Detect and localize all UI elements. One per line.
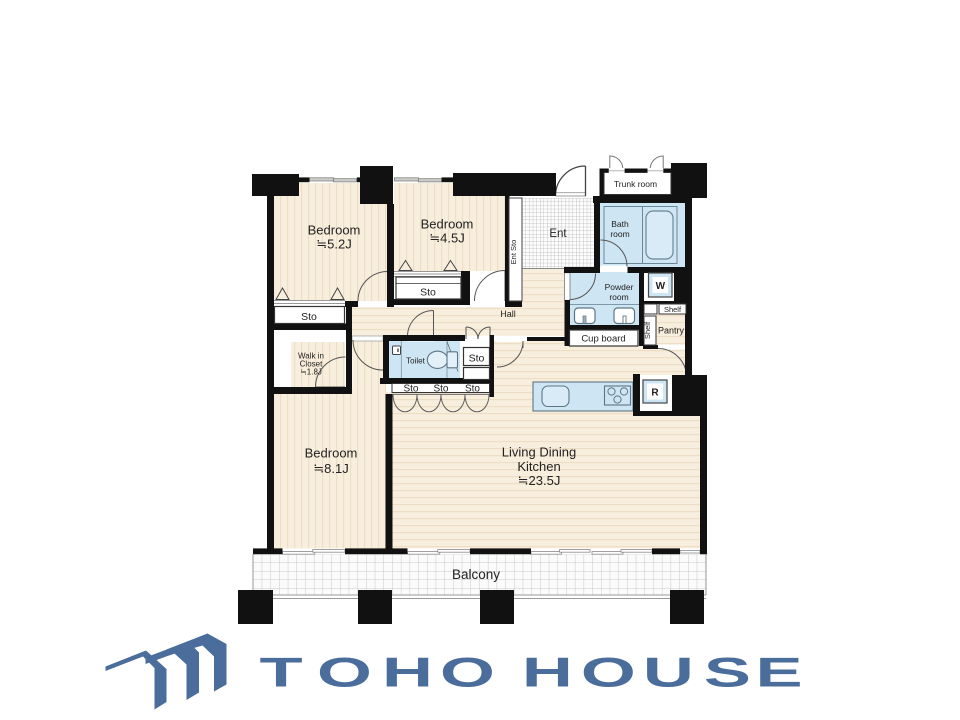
- svg-text:≒5.2J: ≒5.2J: [316, 237, 351, 252]
- svg-text:W: W: [656, 281, 666, 292]
- svg-text:Hall: Hall: [500, 309, 516, 319]
- svg-text:room: room: [610, 229, 629, 239]
- svg-text:≒8.1J: ≒8.1J: [313, 461, 348, 476]
- svg-text:Bath: Bath: [611, 219, 629, 229]
- svg-text:Sto: Sto: [403, 383, 418, 394]
- svg-text:Sto: Sto: [301, 311, 317, 323]
- svg-text:R: R: [651, 388, 659, 399]
- svg-text:≒4.5J: ≒4.5J: [429, 231, 464, 246]
- svg-text:Sto: Sto: [469, 353, 485, 365]
- svg-text:Trunk room: Trunk room: [614, 179, 657, 189]
- svg-text:room: room: [609, 292, 628, 302]
- svg-text:Shelf: Shelf: [664, 305, 682, 314]
- svg-text:≒23.5J: ≒23.5J: [518, 473, 561, 488]
- svg-text:Pantry: Pantry: [658, 326, 685, 336]
- svg-text:Ent: Ent: [549, 228, 567, 240]
- svg-text:Bedroom: Bedroom: [308, 223, 361, 238]
- svg-text:Powder: Powder: [605, 282, 634, 292]
- svg-text:TOHOHOUSE: TOHOHOUSE: [260, 649, 803, 696]
- svg-text:Toilet: Toilet: [406, 357, 425, 366]
- svg-text:Bedroom: Bedroom: [305, 446, 358, 461]
- svg-text:Sto: Sto: [433, 383, 448, 394]
- svg-text:Balcony: Balcony: [452, 567, 500, 582]
- svg-text:Living Dining: Living Dining: [502, 445, 576, 460]
- svg-text:Kitchen: Kitchen: [517, 459, 560, 474]
- svg-text:Bedroom: Bedroom: [421, 217, 474, 232]
- svg-text:Cup board: Cup board: [581, 334, 625, 345]
- svg-text:≒1.8J: ≒1.8J: [300, 368, 322, 377]
- svg-text:Sto: Sto: [420, 287, 436, 299]
- svg-text:Sto: Sto: [465, 383, 480, 394]
- svg-text:Shelf: Shelf: [643, 321, 652, 339]
- svg-text:Ent Sto: Ent Sto: [509, 240, 518, 265]
